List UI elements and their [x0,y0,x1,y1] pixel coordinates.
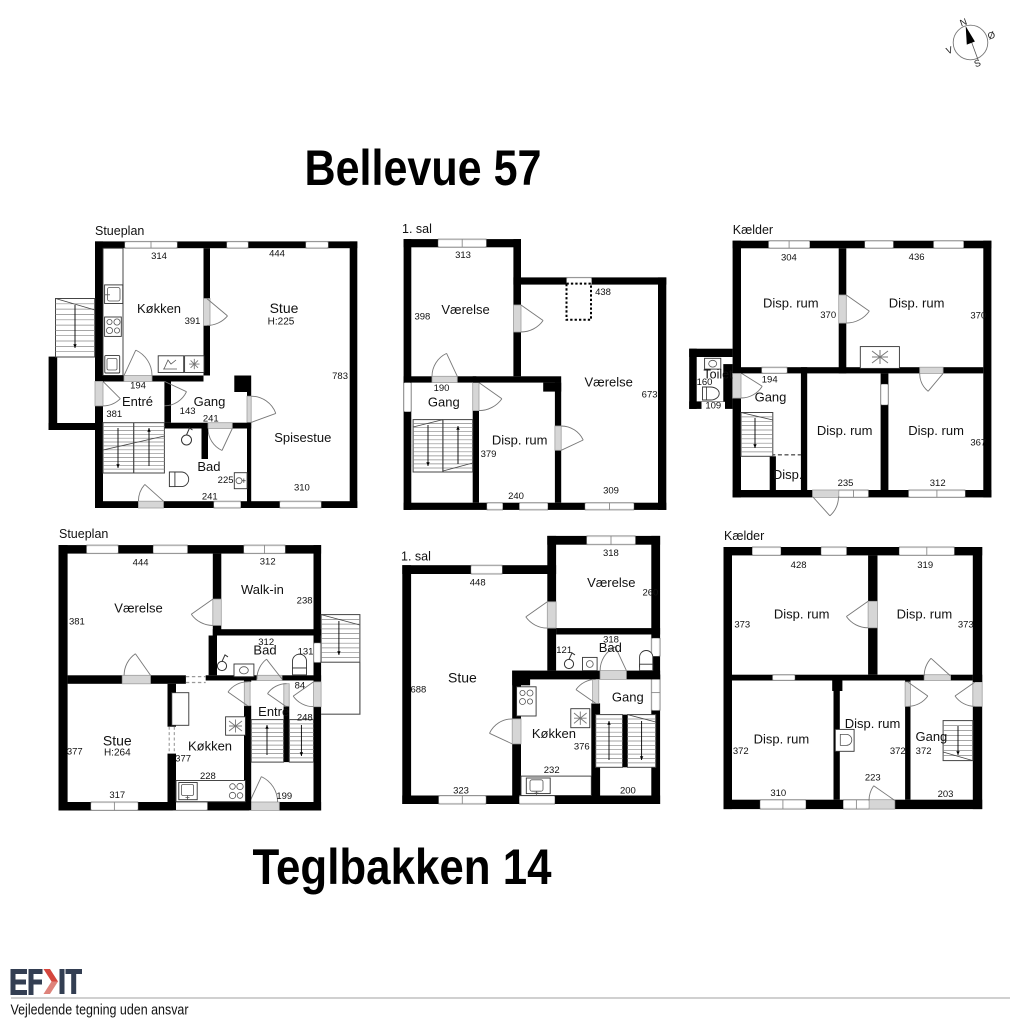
svg-text:Bad: Bad [253,643,276,658]
svg-text:Gang: Gang [428,395,460,410]
svg-text:Disp. rum: Disp. rum [754,732,810,747]
svg-text:Disp. rum: Disp. rum [774,607,830,622]
svg-text:199: 199 [276,791,292,802]
svg-text:304: 304 [781,252,797,263]
svg-text:Disp. rum: Disp. rum [817,423,873,438]
svg-text:235: 235 [838,478,854,489]
svg-text:398: 398 [414,312,430,323]
svg-text:238: 238 [297,596,313,607]
svg-text:318: 318 [603,548,619,559]
svg-text:Walk-in: Walk-in [241,582,284,597]
svg-text:428: 428 [791,560,807,571]
svg-text:143: 143 [180,406,196,417]
svg-text:688: 688 [410,684,426,695]
svg-text:381: 381 [69,617,85,628]
svg-text:194: 194 [762,374,778,385]
svg-text:377: 377 [67,746,83,757]
svg-text:131: 131 [298,647,314,658]
svg-text:Disp. rum: Disp. rum [889,296,945,311]
svg-text:Disp. rum: Disp. rum [908,423,964,438]
svg-text:109: 109 [705,401,721,412]
svg-text:Teglbakken 14: Teglbakken 14 [253,839,552,895]
svg-text:673: 673 [642,390,658,401]
svg-text:Værelse: Værelse [114,601,162,616]
svg-text:203: 203 [938,789,954,800]
svg-text:312: 312 [930,478,946,489]
svg-text:373: 373 [958,619,974,630]
svg-text:Gang: Gang [755,390,787,405]
svg-text:225: 225 [218,475,234,486]
svg-text:160: 160 [697,377,713,388]
svg-text:Disp. rum: Disp. rum [763,296,819,311]
svg-text:312: 312 [260,557,276,568]
svg-text:Bad: Bad [599,640,622,655]
svg-text:370: 370 [820,310,836,321]
svg-text:Køkken: Køkken [532,726,576,741]
svg-text:228: 228 [200,771,216,782]
svg-text:232: 232 [544,765,560,776]
svg-text:Gang: Gang [612,690,644,705]
svg-text:Disp.: Disp. [773,467,803,482]
svg-text:Gang: Gang [915,729,947,744]
svg-text:370: 370 [970,311,986,322]
svg-text:Stue: Stue [103,733,132,749]
svg-text:241: 241 [202,492,218,503]
svg-text:309: 309 [603,486,619,497]
svg-text:Køkken: Køkken [137,301,181,316]
svg-text:Stueplan: Stueplan [95,224,144,238]
svg-text:Værelse: Værelse [584,375,632,390]
svg-text:84: 84 [295,681,306,692]
svg-text:Entré: Entré [122,394,153,409]
svg-text:Værelse: Værelse [441,302,489,317]
svg-text:310: 310 [294,483,310,494]
svg-text:444: 444 [269,249,285,260]
svg-text:1. sal: 1. sal [401,550,431,564]
svg-text:241: 241 [203,413,219,424]
svg-text:373: 373 [734,619,750,630]
svg-text:Bad: Bad [197,459,220,474]
svg-text:Disp. rum: Disp. rum [897,607,953,622]
svg-text:Kælder: Kælder [733,223,773,237]
svg-text:376: 376 [574,742,590,753]
svg-text:194: 194 [130,381,146,392]
svg-text:Spisestue: Spisestue [274,430,331,445]
svg-text:Stue: Stue [270,300,299,316]
svg-text:Bellevue 57: Bellevue 57 [305,140,542,196]
svg-text:381: 381 [106,409,122,420]
svg-text:Stue: Stue [448,670,477,686]
svg-text:377: 377 [175,753,191,764]
svg-text:1. sal: 1. sal [402,222,432,236]
svg-text:438: 438 [595,287,611,298]
svg-text:Kælder: Kælder [724,529,764,543]
svg-text:Disp. rum: Disp. rum [492,433,548,448]
svg-text:260: 260 [642,588,658,599]
svg-text:200: 200 [620,785,636,796]
svg-text:223: 223 [865,773,881,784]
svg-text:367: 367 [970,438,986,449]
svg-text:Vejledende tegning uden ansvar: Vejledende tegning uden ansvar [11,1003,189,1019]
svg-text:319: 319 [917,560,933,571]
svg-text:Gang: Gang [194,394,226,409]
svg-text:372: 372 [890,746,906,757]
svg-text:190: 190 [434,383,450,394]
svg-text:Køkken: Køkken [188,739,232,754]
svg-text:391: 391 [185,316,201,327]
svg-text:379: 379 [481,449,497,460]
svg-text:372: 372 [733,746,749,757]
svg-text:H:225: H:225 [268,317,295,328]
svg-text:313: 313 [455,250,471,261]
svg-text:Værelse: Værelse [587,575,635,590]
svg-text:121: 121 [556,645,572,656]
svg-text:Entré: Entré [258,704,289,719]
svg-text:444: 444 [133,558,149,569]
svg-text:436: 436 [909,252,925,263]
svg-text:310: 310 [770,788,786,799]
svg-text:317: 317 [109,790,125,801]
svg-text:248: 248 [297,712,313,723]
svg-text:314: 314 [151,251,167,262]
svg-text:240: 240 [508,491,524,502]
svg-text:H:264: H:264 [104,748,131,759]
svg-text:783: 783 [332,371,348,382]
svg-text:Stueplan: Stueplan [59,527,108,541]
svg-text:Disp. rum: Disp. rum [845,716,901,731]
svg-text:323: 323 [453,785,469,796]
svg-text:372: 372 [916,746,932,757]
svg-text:448: 448 [470,577,486,588]
